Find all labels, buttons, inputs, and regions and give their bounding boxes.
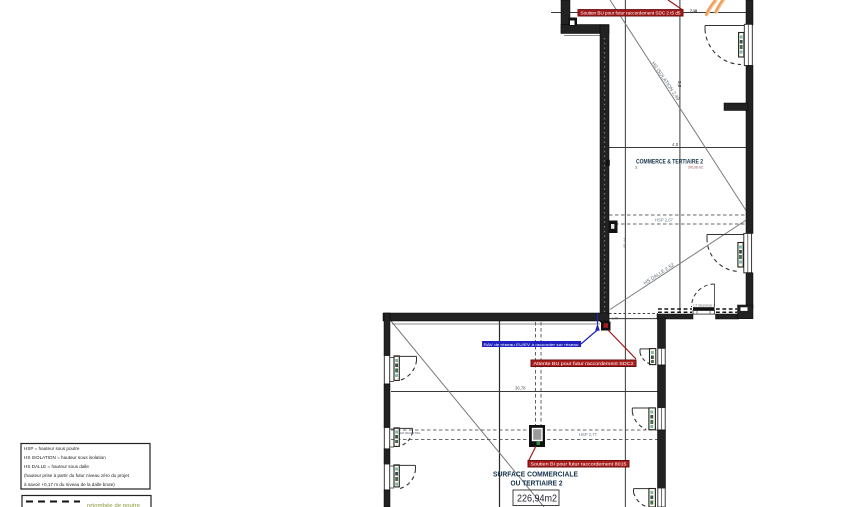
svg-text:Soutien BU pour futur raccorde: Soutien BU pour futur raccordement SDC 2… [581, 11, 682, 16]
svg-text:226,94m2: 226,94m2 [517, 494, 557, 505]
svg-text:HSP = hauteur sous poutre: HSP = hauteur sous poutre [24, 446, 80, 451]
svg-text:Soutien BI pour futur raccorde: Soutien BI pour futur raccordement 8015 [531, 462, 628, 467]
svg-text:7,18: 7,18 [690, 9, 697, 13]
svg-text:LT clearance v: LT clearance v [694, 303, 716, 307]
svg-text:OU TERTIAIRE 2: OU TERTIAIRE 2 [511, 481, 563, 488]
svg-text:4,8: 4,8 [672, 142, 679, 147]
svg-text:COMMERCE & TERTIAIRE 2: COMMERCE & TERTIAIRE 2 [636, 159, 703, 166]
svg-text:(hauteur prise à partir du fut: (hauteur prise à partir du futur niveau … [24, 473, 130, 478]
svg-text:AER REGISTRE: AER REGISTRE [398, 431, 420, 435]
svg-text:HSP 2,77: HSP 2,77 [579, 432, 598, 437]
svg-text:36,78: 36,78 [515, 386, 526, 391]
svg-text:3,8: 3,8 [677, 81, 682, 88]
svg-text:1,95: 1,95 [612, 317, 619, 321]
svg-text:HS DALLE = hauteur sous dalle: HS DALLE = hauteur sous dalle [24, 464, 89, 469]
svg-text:à savoir +0,17 m du niveau de: à savoir +0,17 m du niveau de la dalle b… [24, 482, 115, 487]
svg-text:HSP 2,67: HSP 2,67 [655, 218, 674, 223]
svg-text:Attente BU pour futur raccorde: Attente BU pour futur raccordement SDC2 [534, 361, 635, 366]
svg-text:370,06 m2: 370,06 m2 [688, 166, 703, 170]
svg-text:3:: 3: [635, 166, 638, 170]
svg-text:PF 90: PF 90 [623, 238, 627, 248]
svg-text:HS ISOLATION = hauteur sous is: HS ISOLATION = hauteur sous isolation [24, 455, 106, 460]
svg-text:RAV de réseau EU/EV à raccorde: RAV de réseau EU/EV à raccorder sur rése… [484, 342, 579, 347]
svg-text:SURFACE COMMERCIALE: SURFACE COMMERCIALE [493, 472, 578, 479]
svg-text:retombée de poutre: retombée de poutre [87, 503, 140, 507]
